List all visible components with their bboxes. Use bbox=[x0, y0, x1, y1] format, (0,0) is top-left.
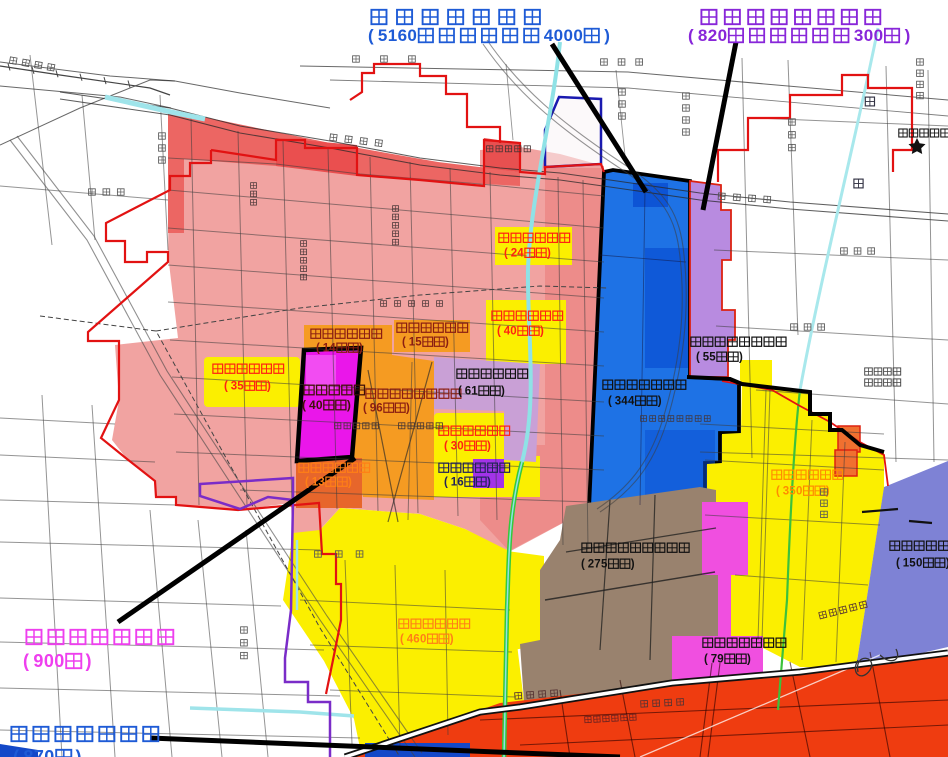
svg-text:0: 0 bbox=[44, 651, 54, 671]
svg-text:(: ( bbox=[224, 380, 228, 392]
svg-text:): ) bbox=[631, 558, 635, 570]
svg-text:(: ( bbox=[696, 351, 700, 363]
svg-text:0: 0 bbox=[420, 633, 426, 645]
svg-text:4: 4 bbox=[544, 26, 554, 45]
svg-text:0: 0 bbox=[874, 26, 883, 45]
svg-text:0: 0 bbox=[864, 26, 873, 45]
svg-text:3: 3 bbox=[451, 440, 457, 452]
svg-text:(: ( bbox=[608, 395, 612, 407]
svg-text:): ) bbox=[359, 342, 363, 354]
svg-text:): ) bbox=[501, 385, 505, 397]
svg-text:0: 0 bbox=[718, 26, 727, 45]
svg-text:8: 8 bbox=[23, 747, 33, 757]
svg-text:): ) bbox=[267, 380, 271, 392]
svg-text:7: 7 bbox=[594, 558, 600, 570]
svg-text:3: 3 bbox=[615, 395, 621, 407]
svg-text:): ) bbox=[348, 476, 352, 488]
svg-text:4: 4 bbox=[517, 247, 524, 259]
svg-text:): ) bbox=[86, 651, 92, 671]
svg-text:3: 3 bbox=[783, 485, 789, 497]
svg-text:6: 6 bbox=[465, 385, 471, 397]
svg-text:(: ( bbox=[402, 336, 406, 348]
svg-text:(: ( bbox=[305, 476, 309, 488]
svg-text:1: 1 bbox=[388, 26, 397, 45]
svg-text:0: 0 bbox=[554, 26, 563, 45]
svg-text:): ) bbox=[547, 247, 551, 259]
svg-text:9: 9 bbox=[33, 651, 43, 671]
svg-text:(: ( bbox=[581, 558, 585, 570]
svg-text:0: 0 bbox=[510, 325, 516, 337]
svg-text:(: ( bbox=[497, 325, 501, 337]
svg-text:0: 0 bbox=[573, 26, 582, 45]
svg-text:5: 5 bbox=[601, 558, 608, 570]
svg-text:(: ( bbox=[688, 26, 694, 45]
svg-text:5: 5 bbox=[378, 26, 387, 45]
svg-text:(: ( bbox=[302, 398, 306, 412]
svg-text:): ) bbox=[487, 476, 491, 488]
svg-text:(: ( bbox=[896, 557, 900, 569]
svg-text:6: 6 bbox=[457, 476, 463, 488]
svg-text:4: 4 bbox=[628, 395, 635, 407]
svg-text:(: ( bbox=[504, 247, 508, 259]
svg-text:5: 5 bbox=[709, 351, 716, 363]
svg-text:5: 5 bbox=[237, 380, 244, 392]
svg-text:(: ( bbox=[316, 342, 320, 354]
svg-text:6: 6 bbox=[398, 26, 407, 45]
svg-text:3: 3 bbox=[231, 380, 237, 392]
svg-text:1: 1 bbox=[471, 385, 478, 397]
svg-text:): ) bbox=[450, 633, 454, 645]
svg-text:5: 5 bbox=[415, 336, 422, 348]
svg-text:(: ( bbox=[400, 633, 404, 645]
svg-text:0: 0 bbox=[407, 26, 416, 45]
svg-text:4: 4 bbox=[329, 342, 336, 354]
svg-text:3: 3 bbox=[854, 26, 863, 45]
svg-text:6: 6 bbox=[413, 633, 419, 645]
svg-text:): ) bbox=[540, 325, 544, 337]
svg-text:0: 0 bbox=[564, 26, 573, 45]
svg-text:0: 0 bbox=[796, 485, 802, 497]
svg-text:): ) bbox=[347, 398, 351, 412]
svg-text:): ) bbox=[747, 653, 751, 665]
svg-text:9: 9 bbox=[717, 653, 723, 665]
svg-text:0: 0 bbox=[316, 398, 323, 412]
svg-text:2: 2 bbox=[588, 558, 594, 570]
svg-text:(: ( bbox=[444, 476, 448, 488]
svg-text:(: ( bbox=[13, 747, 19, 757]
svg-text:(: ( bbox=[363, 402, 367, 414]
svg-text:2: 2 bbox=[708, 26, 717, 45]
svg-text:(: ( bbox=[444, 440, 448, 452]
svg-text:(: ( bbox=[368, 26, 374, 45]
svg-text:7: 7 bbox=[711, 653, 717, 665]
svg-text:): ) bbox=[406, 402, 410, 414]
svg-text:2: 2 bbox=[511, 247, 517, 259]
svg-text:8: 8 bbox=[698, 26, 707, 45]
svg-text:0: 0 bbox=[44, 747, 54, 757]
svg-text:7: 7 bbox=[34, 747, 44, 757]
svg-text:0: 0 bbox=[457, 440, 463, 452]
svg-text:): ) bbox=[604, 26, 610, 45]
svg-text:): ) bbox=[905, 26, 911, 45]
svg-text:0: 0 bbox=[916, 557, 922, 569]
svg-text:3: 3 bbox=[318, 476, 324, 488]
svg-text:0: 0 bbox=[54, 651, 64, 671]
svg-text:(: ( bbox=[776, 485, 780, 497]
svg-text:(: ( bbox=[23, 651, 29, 671]
svg-text:): ) bbox=[76, 747, 82, 757]
svg-text:(: ( bbox=[704, 653, 708, 665]
svg-text:): ) bbox=[487, 440, 491, 452]
svg-text:): ) bbox=[658, 395, 662, 407]
svg-text:): ) bbox=[739, 351, 743, 363]
svg-text:): ) bbox=[445, 336, 449, 348]
svg-text:9: 9 bbox=[370, 402, 376, 414]
svg-text:(: ( bbox=[458, 385, 462, 397]
svg-text:6: 6 bbox=[376, 402, 382, 414]
